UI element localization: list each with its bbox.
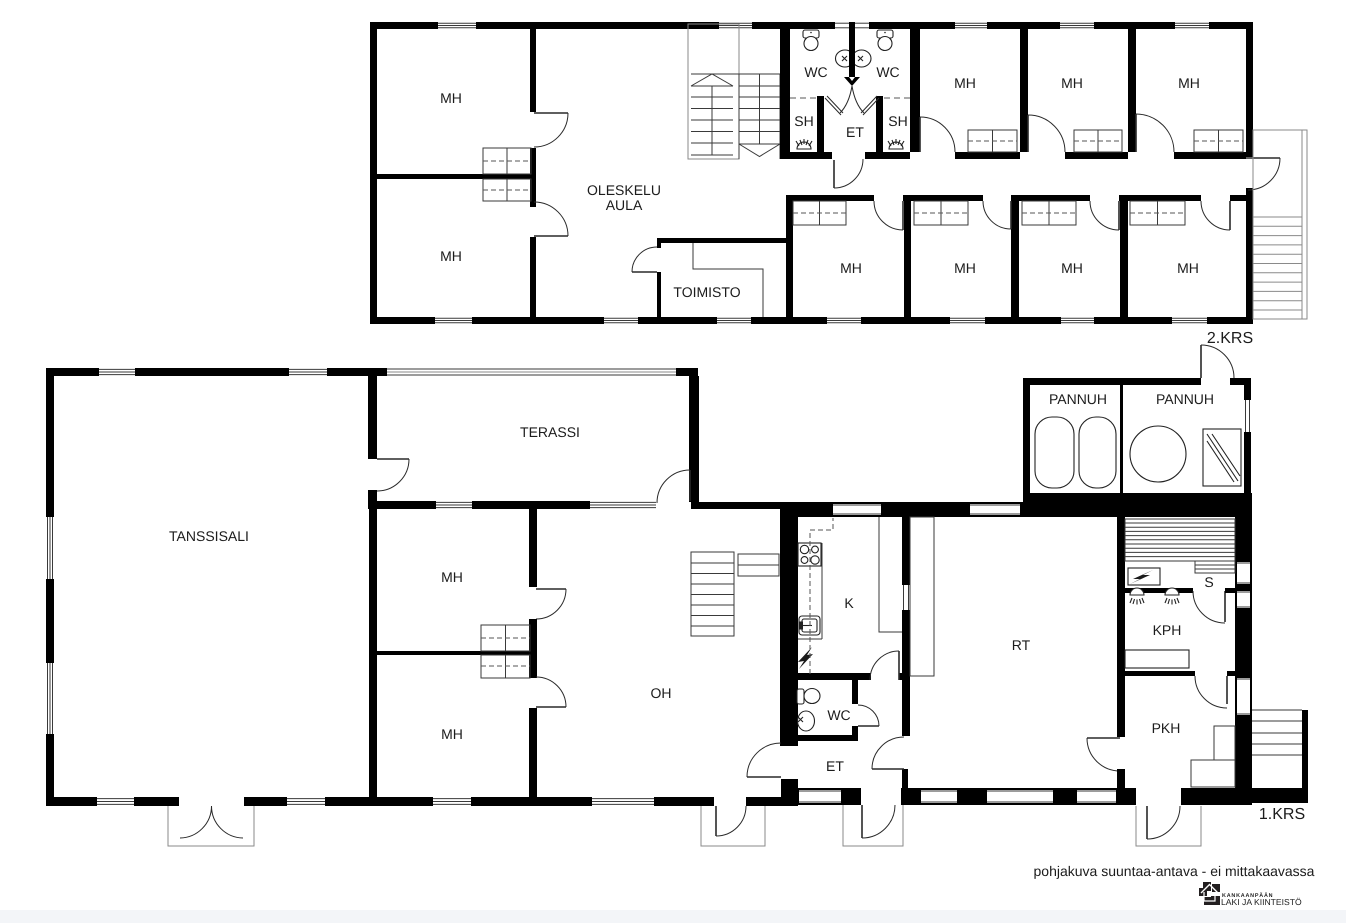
svg-text:K: K xyxy=(844,595,854,611)
svg-text:2.KRS: 2.KRS xyxy=(1207,330,1253,347)
svg-text:MH: MH xyxy=(1061,260,1083,276)
svg-text:MH: MH xyxy=(440,90,462,106)
svg-text:MH: MH xyxy=(840,260,862,276)
svg-text:SH: SH xyxy=(794,113,813,129)
svg-text:PKH: PKH xyxy=(1152,720,1181,736)
svg-text:pohjakuva suuntaa-antava - ei: pohjakuva suuntaa-antava - ei mittakaava… xyxy=(1034,863,1315,879)
svg-text:S: S xyxy=(1204,574,1213,590)
svg-text:MH: MH xyxy=(1061,75,1083,91)
svg-text:TOIMISTO: TOIMISTO xyxy=(673,284,740,300)
svg-text:MH: MH xyxy=(1177,260,1199,276)
svg-text:MH: MH xyxy=(441,569,463,585)
svg-text:PANNUH: PANNUH xyxy=(1156,391,1214,407)
svg-text:RT: RT xyxy=(1012,637,1031,653)
svg-text:ET: ET xyxy=(826,758,844,774)
svg-text:AULA: AULA xyxy=(606,197,643,213)
svg-text:WC: WC xyxy=(804,64,827,80)
svg-text:OH: OH xyxy=(651,685,672,701)
svg-text:TANSSISALI: TANSSISALI xyxy=(169,528,249,544)
svg-text:MH: MH xyxy=(954,75,976,91)
svg-text:WC: WC xyxy=(827,707,850,723)
svg-text:LAKI JA KIINTEISTÖ: LAKI JA KIINTEISTÖ xyxy=(1221,897,1302,907)
svg-text:ET: ET xyxy=(846,124,864,140)
svg-text:MH: MH xyxy=(441,726,463,742)
svg-text:SH: SH xyxy=(888,113,907,129)
svg-text:MH: MH xyxy=(954,260,976,276)
svg-text:KPH: KPH xyxy=(1153,622,1182,638)
svg-text:PANNUH: PANNUH xyxy=(1049,391,1107,407)
svg-text:TERASSI: TERASSI xyxy=(520,424,580,440)
svg-text:1.KRS: 1.KRS xyxy=(1259,806,1305,823)
svg-text:MH: MH xyxy=(440,248,462,264)
svg-text:MH: MH xyxy=(1178,75,1200,91)
svg-text:WC: WC xyxy=(876,64,899,80)
svg-text:OLESKELU: OLESKELU xyxy=(587,182,661,198)
